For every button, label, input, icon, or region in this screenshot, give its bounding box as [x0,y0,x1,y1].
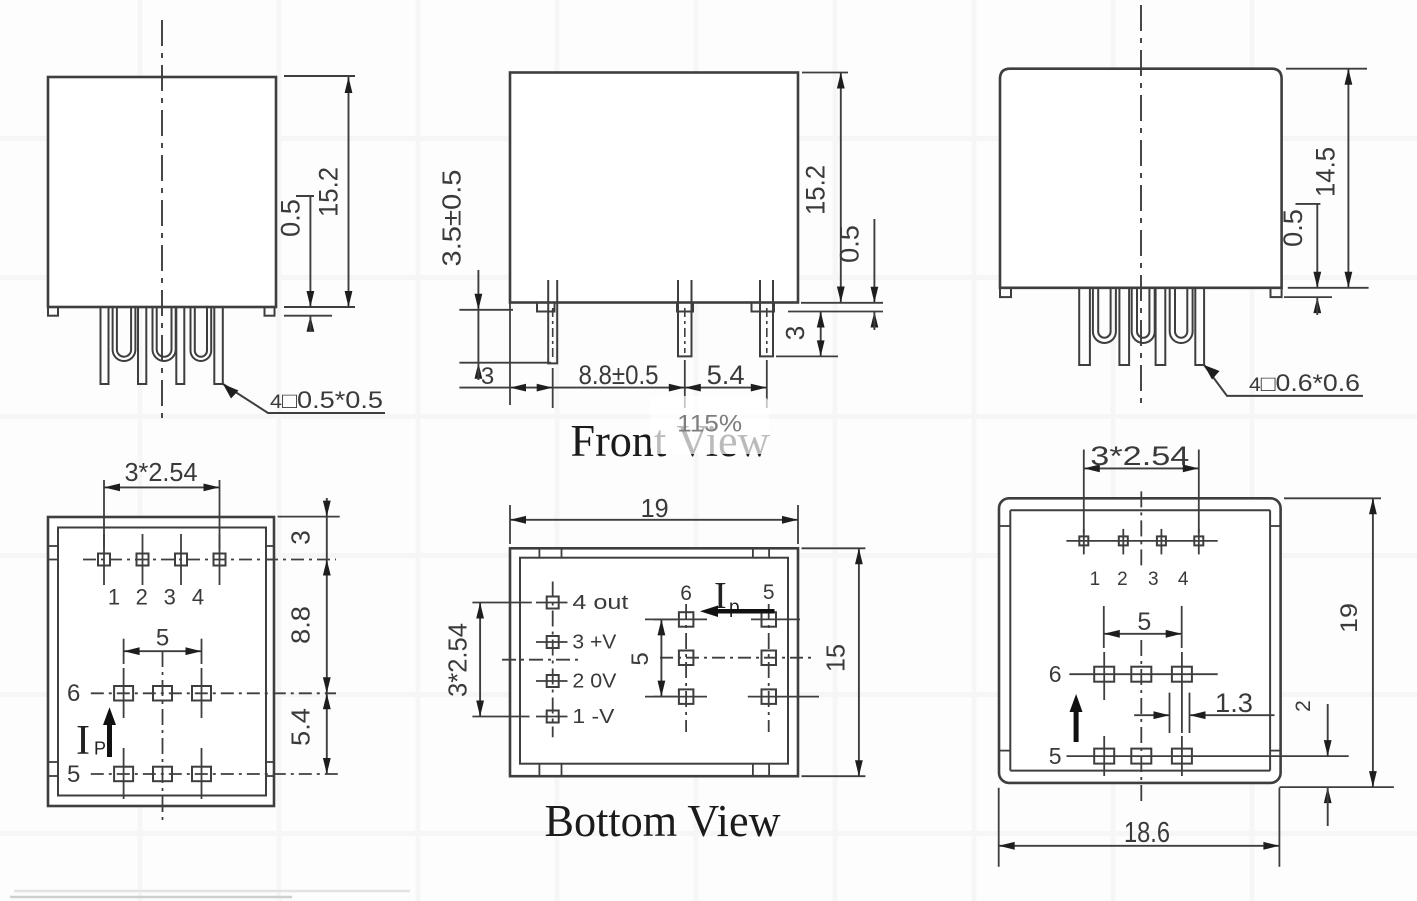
svg-text:1: 1 [1090,569,1101,590]
svg-text:3: 3 [481,363,494,390]
svg-text:1: 1 [108,585,120,610]
svg-text:4□0.6*0.6: 4□0.6*0.6 [1249,370,1360,397]
svg-text:1 -V: 1 -V [572,706,615,728]
svg-text:15.2: 15.2 [801,165,831,215]
svg-text:0.5: 0.5 [276,199,306,237]
svg-text:19: 19 [641,493,669,523]
svg-text:15.2: 15.2 [314,167,344,217]
svg-text:3.5±0.5: 3.5±0.5 [437,170,467,267]
svg-text:4: 4 [1178,569,1189,590]
svg-text:4: 4 [192,585,204,610]
svg-text:5: 5 [1049,743,1062,769]
svg-text:5.4: 5.4 [286,708,316,746]
svg-text:3: 3 [164,585,176,610]
svg-text:5: 5 [1137,608,1151,636]
svg-text:I: I [76,718,90,764]
svg-text:4□0.5*0.5: 4□0.5*0.5 [270,387,383,414]
svg-text:2: 2 [136,585,148,610]
svg-text:115%: 115% [677,411,742,438]
svg-text:3 +V: 3 +V [572,632,617,654]
svg-text:3*2.54: 3*2.54 [1090,441,1189,471]
svg-text:3*2.54: 3*2.54 [443,623,473,697]
svg-text:6: 6 [67,680,80,707]
svg-text:5: 5 [156,625,169,652]
svg-text:5.4: 5.4 [707,360,745,390]
svg-text:15: 15 [820,644,850,672]
svg-text:3: 3 [780,326,810,340]
svg-text:5: 5 [67,761,80,788]
svg-text:2: 2 [1117,569,1128,590]
svg-text:6: 6 [680,582,692,605]
svg-text:3: 3 [286,530,316,544]
svg-text:1.3: 1.3 [1215,688,1253,718]
svg-text:18.6: 18.6 [1124,817,1170,849]
svg-text:3: 3 [1148,569,1159,590]
svg-text:2 0V: 2 0V [572,671,617,693]
svg-text:2: 2 [1292,700,1315,712]
svg-text:Bottom View: Bottom View [545,795,782,846]
svg-text:19: 19 [1336,603,1363,633]
svg-text:3*2.54: 3*2.54 [125,457,198,487]
svg-text:8.8±0.5: 8.8±0.5 [579,360,659,390]
svg-text:6: 6 [1049,661,1062,687]
svg-text:0.5: 0.5 [835,225,865,263]
svg-text:0.5: 0.5 [1278,209,1308,247]
svg-text:14.5: 14.5 [1310,147,1340,197]
svg-text:P: P [94,739,106,759]
svg-text:4 out: 4 out [572,592,629,614]
svg-text:8.8: 8.8 [286,606,316,644]
svg-text:5: 5 [627,652,654,665]
svg-text:5: 5 [763,581,775,604]
svg-text:p: p [729,597,740,618]
